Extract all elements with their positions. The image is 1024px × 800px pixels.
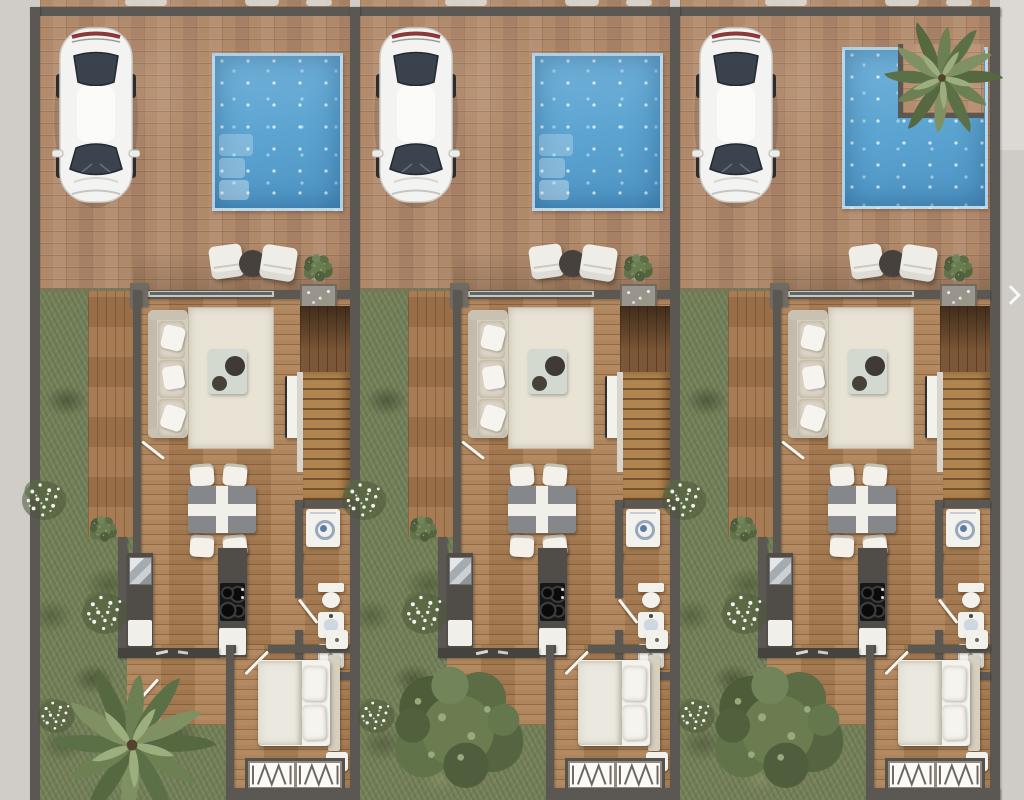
top-wall — [350, 7, 680, 16]
neighbor-object — [626, 0, 652, 6]
white-car — [372, 22, 460, 208]
floor-plan-canvas — [0, 0, 1024, 800]
toilet-bowl — [642, 592, 660, 608]
sliding-glass-door — [148, 291, 274, 297]
planter-palm-tree — [877, 13, 1007, 143]
wardrobe-panel — [890, 763, 934, 787]
deck-shrub — [86, 512, 120, 546]
bed-pillow — [621, 705, 646, 741]
flower-cluster — [338, 462, 390, 534]
toilet-bowl — [962, 592, 980, 608]
neighbor-object — [445, 0, 487, 6]
neighbor-object — [245, 0, 279, 6]
side-deck — [88, 291, 135, 537]
side-deck — [408, 291, 455, 537]
flower-cluster — [718, 578, 772, 644]
flower-cluster — [398, 578, 452, 644]
wardrobe-panel — [937, 763, 981, 787]
top-wall — [30, 7, 360, 16]
bed-pillow — [301, 705, 326, 741]
pool-rect — [212, 53, 343, 211]
washing-machine — [306, 509, 340, 547]
flower-cluster — [658, 462, 710, 534]
toilet-bowl — [322, 592, 340, 608]
garden-palm-tree — [42, 655, 222, 800]
bed-duvet — [258, 661, 302, 745]
lounge-chair — [259, 243, 299, 282]
bed-duvet — [898, 661, 942, 745]
plant-pot-foliage — [300, 250, 336, 286]
neighbor-strip — [40, 0, 350, 7]
bed-pillow — [941, 666, 966, 702]
white-car — [52, 22, 140, 208]
pool-rect — [532, 53, 663, 211]
bed-pillow — [621, 666, 646, 702]
wardrobe-panel — [297, 763, 341, 787]
bed-duvet — [578, 661, 622, 745]
sofa — [788, 310, 828, 438]
garden-shrub — [378, 648, 538, 800]
coffee-table — [528, 349, 567, 394]
wardrobe — [565, 758, 665, 792]
toilet — [958, 583, 984, 592]
sliding-glass-door — [468, 291, 594, 297]
neighbor-object — [306, 0, 332, 6]
dining-table — [508, 486, 576, 533]
unit-3 — [670, 0, 1000, 800]
garden-shrub — [698, 648, 858, 800]
lounge-chair — [579, 243, 619, 282]
coffee-table — [848, 349, 887, 394]
wardrobe — [885, 758, 985, 792]
understairs-wall — [935, 500, 990, 508]
unit-2 — [350, 0, 680, 800]
dining-table — [188, 486, 256, 533]
wardrobe — [245, 758, 345, 792]
kitchen-island — [538, 548, 567, 657]
washing-machine — [626, 509, 660, 547]
neighbor-strip — [360, 0, 670, 7]
neighbor-object — [565, 0, 599, 6]
neighbor-object — [125, 0, 167, 6]
lounge-chair — [899, 243, 939, 282]
left-wall — [350, 7, 360, 800]
sofa — [468, 310, 508, 438]
nightstand — [966, 630, 988, 649]
kitchen-island — [218, 548, 247, 657]
kitchen-island — [858, 548, 887, 657]
flower-cluster — [18, 462, 70, 534]
toilet — [318, 583, 344, 592]
side-deck — [728, 291, 775, 537]
plant-pot-foliage — [940, 250, 976, 286]
coffee-table — [208, 349, 247, 394]
wardrobe-panel — [250, 763, 294, 787]
laundry-wall — [935, 500, 943, 560]
left-wall — [30, 7, 40, 800]
nightstand — [646, 630, 668, 649]
flower-cluster — [78, 578, 132, 644]
deck-shrub — [726, 512, 760, 546]
nightstand — [326, 630, 348, 649]
deck-shrub — [406, 512, 440, 546]
bed-pillow — [941, 705, 966, 741]
wardrobe-panel — [570, 763, 614, 787]
laundry-wall — [295, 500, 303, 560]
laundry-wall — [615, 500, 623, 560]
washing-machine — [946, 509, 980, 547]
wardrobe-panel — [617, 763, 661, 787]
bed-pillow — [301, 666, 326, 702]
dining-table — [828, 486, 896, 533]
unit-1 — [30, 0, 360, 800]
sofa — [148, 310, 188, 438]
plant-pot-foliage — [620, 250, 656, 286]
sliding-glass-door — [788, 291, 914, 297]
toilet — [638, 583, 664, 592]
